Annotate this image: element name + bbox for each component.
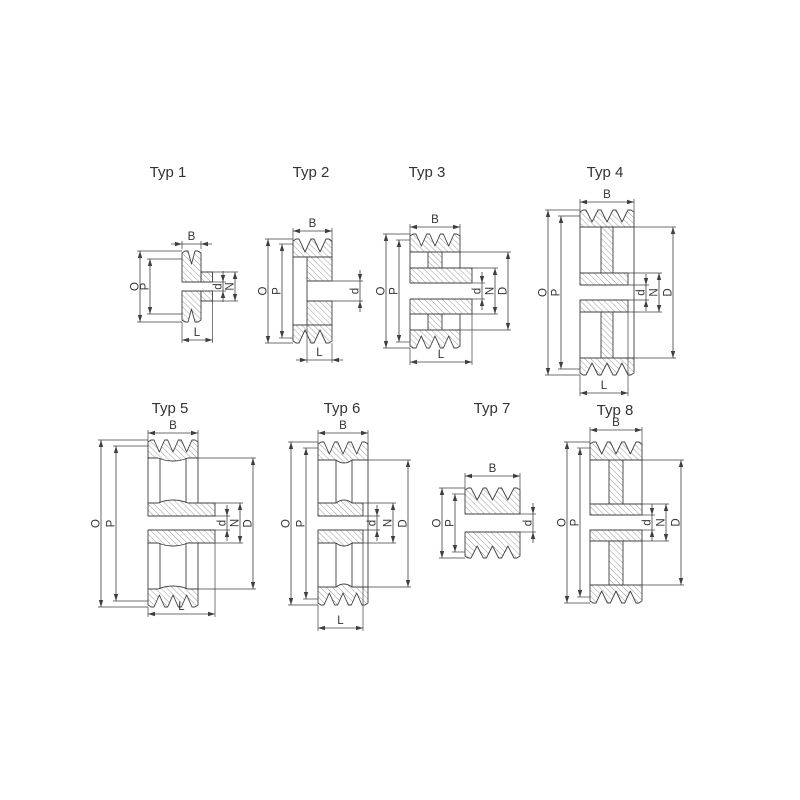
typ4-dim-label-D: D [663, 288, 675, 296]
typ2-dim-label-O: O [258, 286, 270, 295]
typ6-dim-label-N: N [383, 519, 395, 527]
typ3-dim-label-d: d [472, 288, 484, 294]
typ8-dim-label-d: d [642, 519, 654, 525]
typ3-dim-label-P: P [389, 287, 401, 295]
typ3-dim-label-B: B [431, 214, 439, 226]
typ4-dim-label-P: P [551, 288, 563, 296]
typ3-dim-label-D: D [498, 287, 510, 295]
typ8-dim-label-B: B [612, 417, 620, 429]
typ3-dim-label-L: L [438, 349, 445, 361]
typ1-dim-label-L: L [194, 327, 201, 339]
typ2-dim-label-P: P [272, 287, 284, 295]
typ7-dim-label-d: d [523, 520, 535, 526]
typ4-dim-label-O: O [538, 288, 550, 297]
figure-typ2: Typ 2 B L O P d [258, 164, 364, 363]
typ1-dim-label-d: d [213, 283, 225, 289]
typ1-dim-label-N: N [225, 282, 237, 290]
typ1-dim-label-P: P [140, 282, 152, 290]
typ1-title: Typ 1 [150, 164, 187, 181]
typ6-dim-label-P: P [296, 519, 308, 527]
typ5-dim-label-B: B [169, 420, 177, 432]
typ7-geometry [439, 473, 536, 558]
typ6-title: Typ 6 [324, 400, 361, 417]
typ8-dim-label-P: P [570, 518, 582, 526]
figure-typ5: Typ 5 B L O P d N D [91, 400, 257, 617]
typ2-dim-label-B: B [309, 218, 317, 230]
typ8-dim-label-N: N [656, 518, 668, 526]
typ2-title: Typ 2 [293, 164, 330, 181]
typ2-dim-label-L: L [316, 347, 323, 359]
figure-typ3: Typ 3 B L O P d N D [376, 164, 512, 365]
typ4-dim-label-N: N [649, 288, 661, 296]
typ6-dim-label-d: d [367, 520, 379, 526]
typ6-dim-label-B: B [339, 420, 347, 432]
typ3-dim-label-N: N [485, 287, 497, 295]
typ7-title: Typ 7 [474, 400, 511, 417]
pulley-types-diagram: Typ 1 B L O P d N Typ 2 B L O P d Typ 3 … [0, 0, 800, 800]
typ6-dim-label-L: L [337, 615, 344, 627]
typ8-dim-label-O: O [557, 518, 569, 527]
typ1-geometry [137, 241, 238, 343]
typ6-dim-label-O: O [281, 519, 293, 528]
figure-typ6: Typ 6 B L O P d N D [281, 400, 412, 631]
typ5-dim-label-N: N [230, 519, 242, 527]
typ4-dim-label-L: L [601, 380, 608, 392]
figure-typ1: Typ 1 B L O P d N [130, 164, 239, 343]
typ6-dim-label-D: D [398, 519, 410, 527]
typ2-dim-label-d: d [350, 288, 362, 294]
typ7-dim-label-B: B [489, 463, 497, 475]
typ5-dim-label-O: O [91, 519, 103, 528]
typ3-dim-label-O: O [376, 286, 388, 295]
typ7-dim-label-O: O [432, 518, 444, 527]
typ5-title: Typ 5 [152, 400, 189, 417]
typ6-geometry [288, 430, 411, 631]
typ8-geometry [564, 427, 684, 603]
typ4-dim-label-d: d [636, 289, 648, 295]
typ5-dim-label-D: D [243, 519, 255, 527]
typ8-dim-label-D: D [671, 518, 683, 526]
typ1-dim-label-B: B [188, 231, 196, 243]
typ4-title: Typ 4 [587, 164, 624, 181]
typ5-dim-label-d: d [217, 520, 229, 526]
typ5-dim-label-L: L [178, 601, 185, 613]
figure-typ4: Typ 4 B L O P d N D [538, 164, 677, 396]
figure-typ8: Typ 8 B O P d N D [557, 402, 685, 603]
typ5-dim-label-P: P [106, 519, 118, 527]
typ7-dim-label-P: P [445, 519, 457, 527]
typ4-dim-label-B: B [603, 189, 611, 201]
typ3-title: Typ 3 [409, 164, 446, 181]
figure-typ7: Typ 7 B O P d [432, 400, 537, 558]
